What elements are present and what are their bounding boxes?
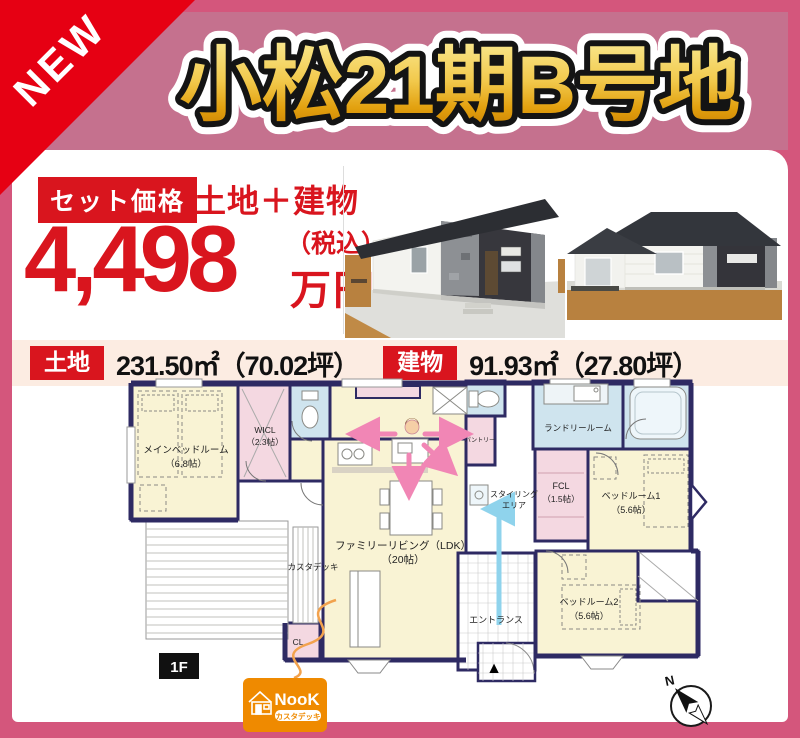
bay-window	[691, 484, 706, 520]
svg-text:ランドリールーム: ランドリールーム	[544, 423, 612, 433]
svg-text:（6.8帖）: （6.8帖）	[165, 458, 207, 470]
house-render-front	[567, 196, 782, 320]
floor-tag: 1F	[159, 653, 199, 679]
svg-text:（1.5帖）: （1.5帖）	[542, 494, 579, 504]
svg-text:ベッドルーム1: ベッドルーム1	[602, 491, 661, 501]
svg-text:FCL: FCL	[552, 481, 569, 491]
svg-text:エントランス: エントランス	[469, 615, 523, 625]
vertical-divider	[343, 166, 344, 334]
person-icon	[405, 418, 419, 434]
svg-text:1F: 1F	[170, 659, 188, 676]
svg-text:（20帖）: （20帖）	[381, 553, 424, 566]
compass-n-label: N	[664, 672, 676, 689]
svg-text:エリア: エリア	[502, 501, 526, 510]
svg-text:（2.3帖）: （2.3帖）	[246, 437, 283, 447]
callout-squiggle	[252, 596, 352, 680]
svg-text:（5.6帖）: （5.6帖）	[611, 504, 651, 515]
building-chip: 建物	[383, 346, 457, 379]
svg-text:ファミリーリビング（LDK）: ファミリーリビング（LDK）	[335, 539, 471, 552]
flyer-page: 小松21期B号地 小松21期B号地 NEW セット価格 土地＋建物 4,498 …	[0, 0, 800, 738]
compass-icon: N	[656, 670, 722, 736]
svg-text:スタイリング: スタイリング	[490, 489, 538, 499]
svg-text:カスタデッキ: カスタデッキ	[287, 562, 338, 572]
entrance-marker-icon: ▲	[486, 660, 502, 677]
new-ribbon-icon: NEW	[0, 0, 200, 200]
svg-text:パントリー: パントリー	[465, 437, 495, 444]
nook-logo: NooK カスタデッキ	[243, 678, 327, 732]
logo-tagline: カスタデッキ	[276, 711, 321, 721]
land-chip: 土地	[30, 346, 104, 379]
price-amount: 4,498	[24, 212, 234, 306]
svg-text:WICL: WICL	[254, 425, 276, 435]
page-title: 小松21期B号地 小松21期B号地	[118, 16, 800, 148]
logo-name: NooK	[274, 690, 320, 709]
title-text: 小松21期B号地	[180, 40, 740, 131]
svg-text:ベッドルーム2: ベッドルーム2	[560, 597, 619, 607]
svg-text:（5.6帖）: （5.6帖）	[569, 610, 609, 621]
floor-plan: メインベッドルーム （6.8帖） WICL （2.3帖） ファミリーリビング（L…	[126, 377, 774, 687]
svg-text:メインベッドルーム: メインベッドルーム	[143, 445, 228, 456]
house-render-perspective	[345, 163, 565, 338]
